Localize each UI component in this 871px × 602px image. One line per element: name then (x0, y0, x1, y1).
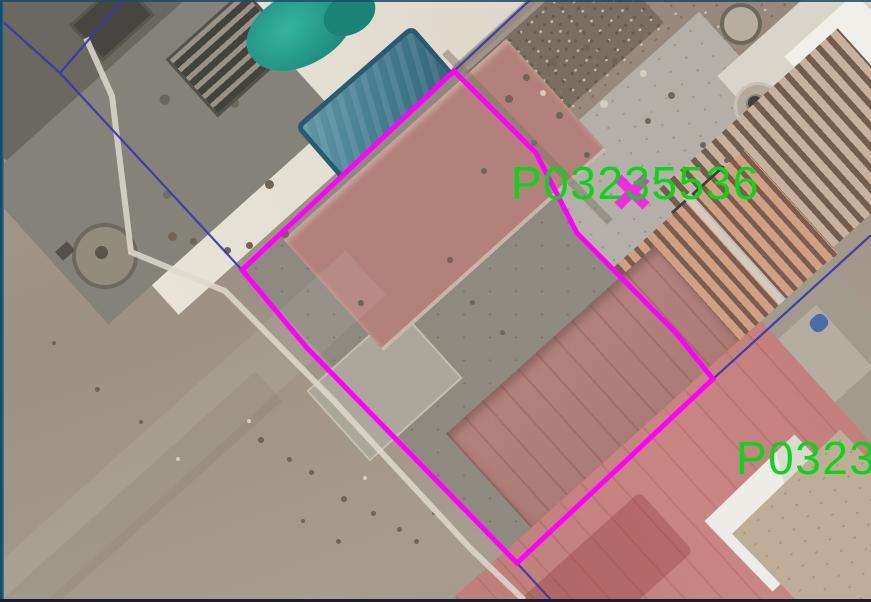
parcel-line[interactable] (60, 73, 242, 270)
parcel-line[interactable] (454, 0, 530, 71)
selected-parcel-boundary[interactable] (242, 71, 713, 563)
cadastral-overlay (0, 0, 871, 602)
map-viewport[interactable]: P03235536 P0323 (0, 0, 871, 602)
map-frame-top (0, 0, 871, 2)
parcel-label-1[interactable]: P03235536 (511, 159, 760, 207)
map-frame-left (0, 0, 4, 602)
parcel-line[interactable] (0, 19, 60, 73)
white-wall (86, 38, 524, 600)
parcel-label-2[interactable]: P0323 (736, 434, 871, 482)
parcel-line[interactable] (60, 0, 123, 73)
parcel-line[interactable] (713, 236, 870, 379)
